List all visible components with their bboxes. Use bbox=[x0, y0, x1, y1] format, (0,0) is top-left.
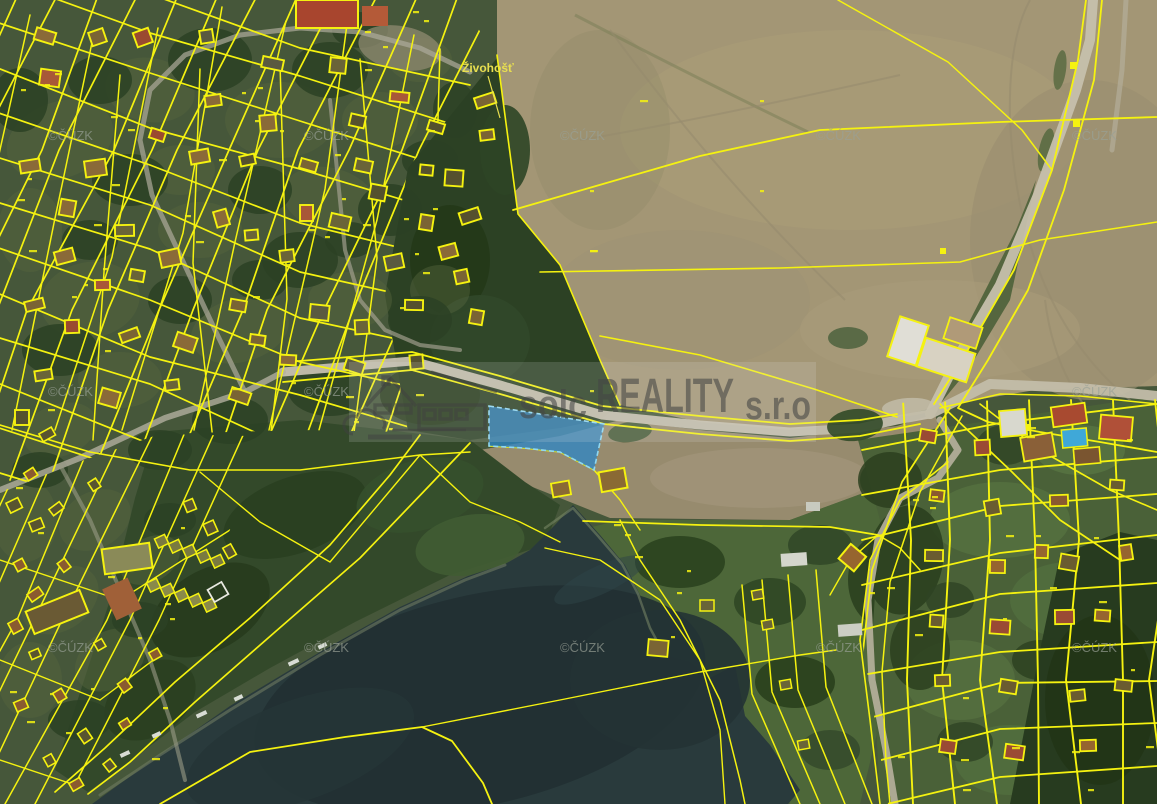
svg-text:©ČÚZK: ©ČÚZK bbox=[48, 128, 93, 143]
svg-text:©ČÚZK: ©ČÚZK bbox=[48, 384, 93, 399]
svg-text:©ČÚZK: ©ČÚZK bbox=[1072, 384, 1117, 399]
svg-text:©ČÚZK: ©ČÚZK bbox=[304, 128, 349, 143]
svg-text:solc: solc bbox=[519, 383, 587, 427]
svg-text:©ČÚZK: ©ČÚZK bbox=[304, 640, 349, 655]
svg-text:©ČÚZK: ©ČÚZK bbox=[560, 640, 605, 655]
svg-text:©ČÚZK: ©ČÚZK bbox=[1072, 640, 1117, 655]
svg-text:©ČÚZK: ©ČÚZK bbox=[1072, 128, 1117, 143]
svg-text:©ČÚZK: ©ČÚZK bbox=[816, 128, 861, 143]
svg-text:Živohošť: Živohošť bbox=[462, 60, 514, 75]
svg-text:REALITY: REALITY bbox=[596, 370, 734, 423]
svg-text:©ČÚZK: ©ČÚZK bbox=[816, 640, 861, 655]
svg-text:©ČÚZK: ©ČÚZK bbox=[48, 640, 93, 655]
svg-text:©ČÚZK: ©ČÚZK bbox=[560, 128, 605, 143]
svg-text:s.r.o: s.r.o bbox=[745, 384, 811, 428]
svg-text:©ČÚZK: ©ČÚZK bbox=[304, 384, 349, 399]
